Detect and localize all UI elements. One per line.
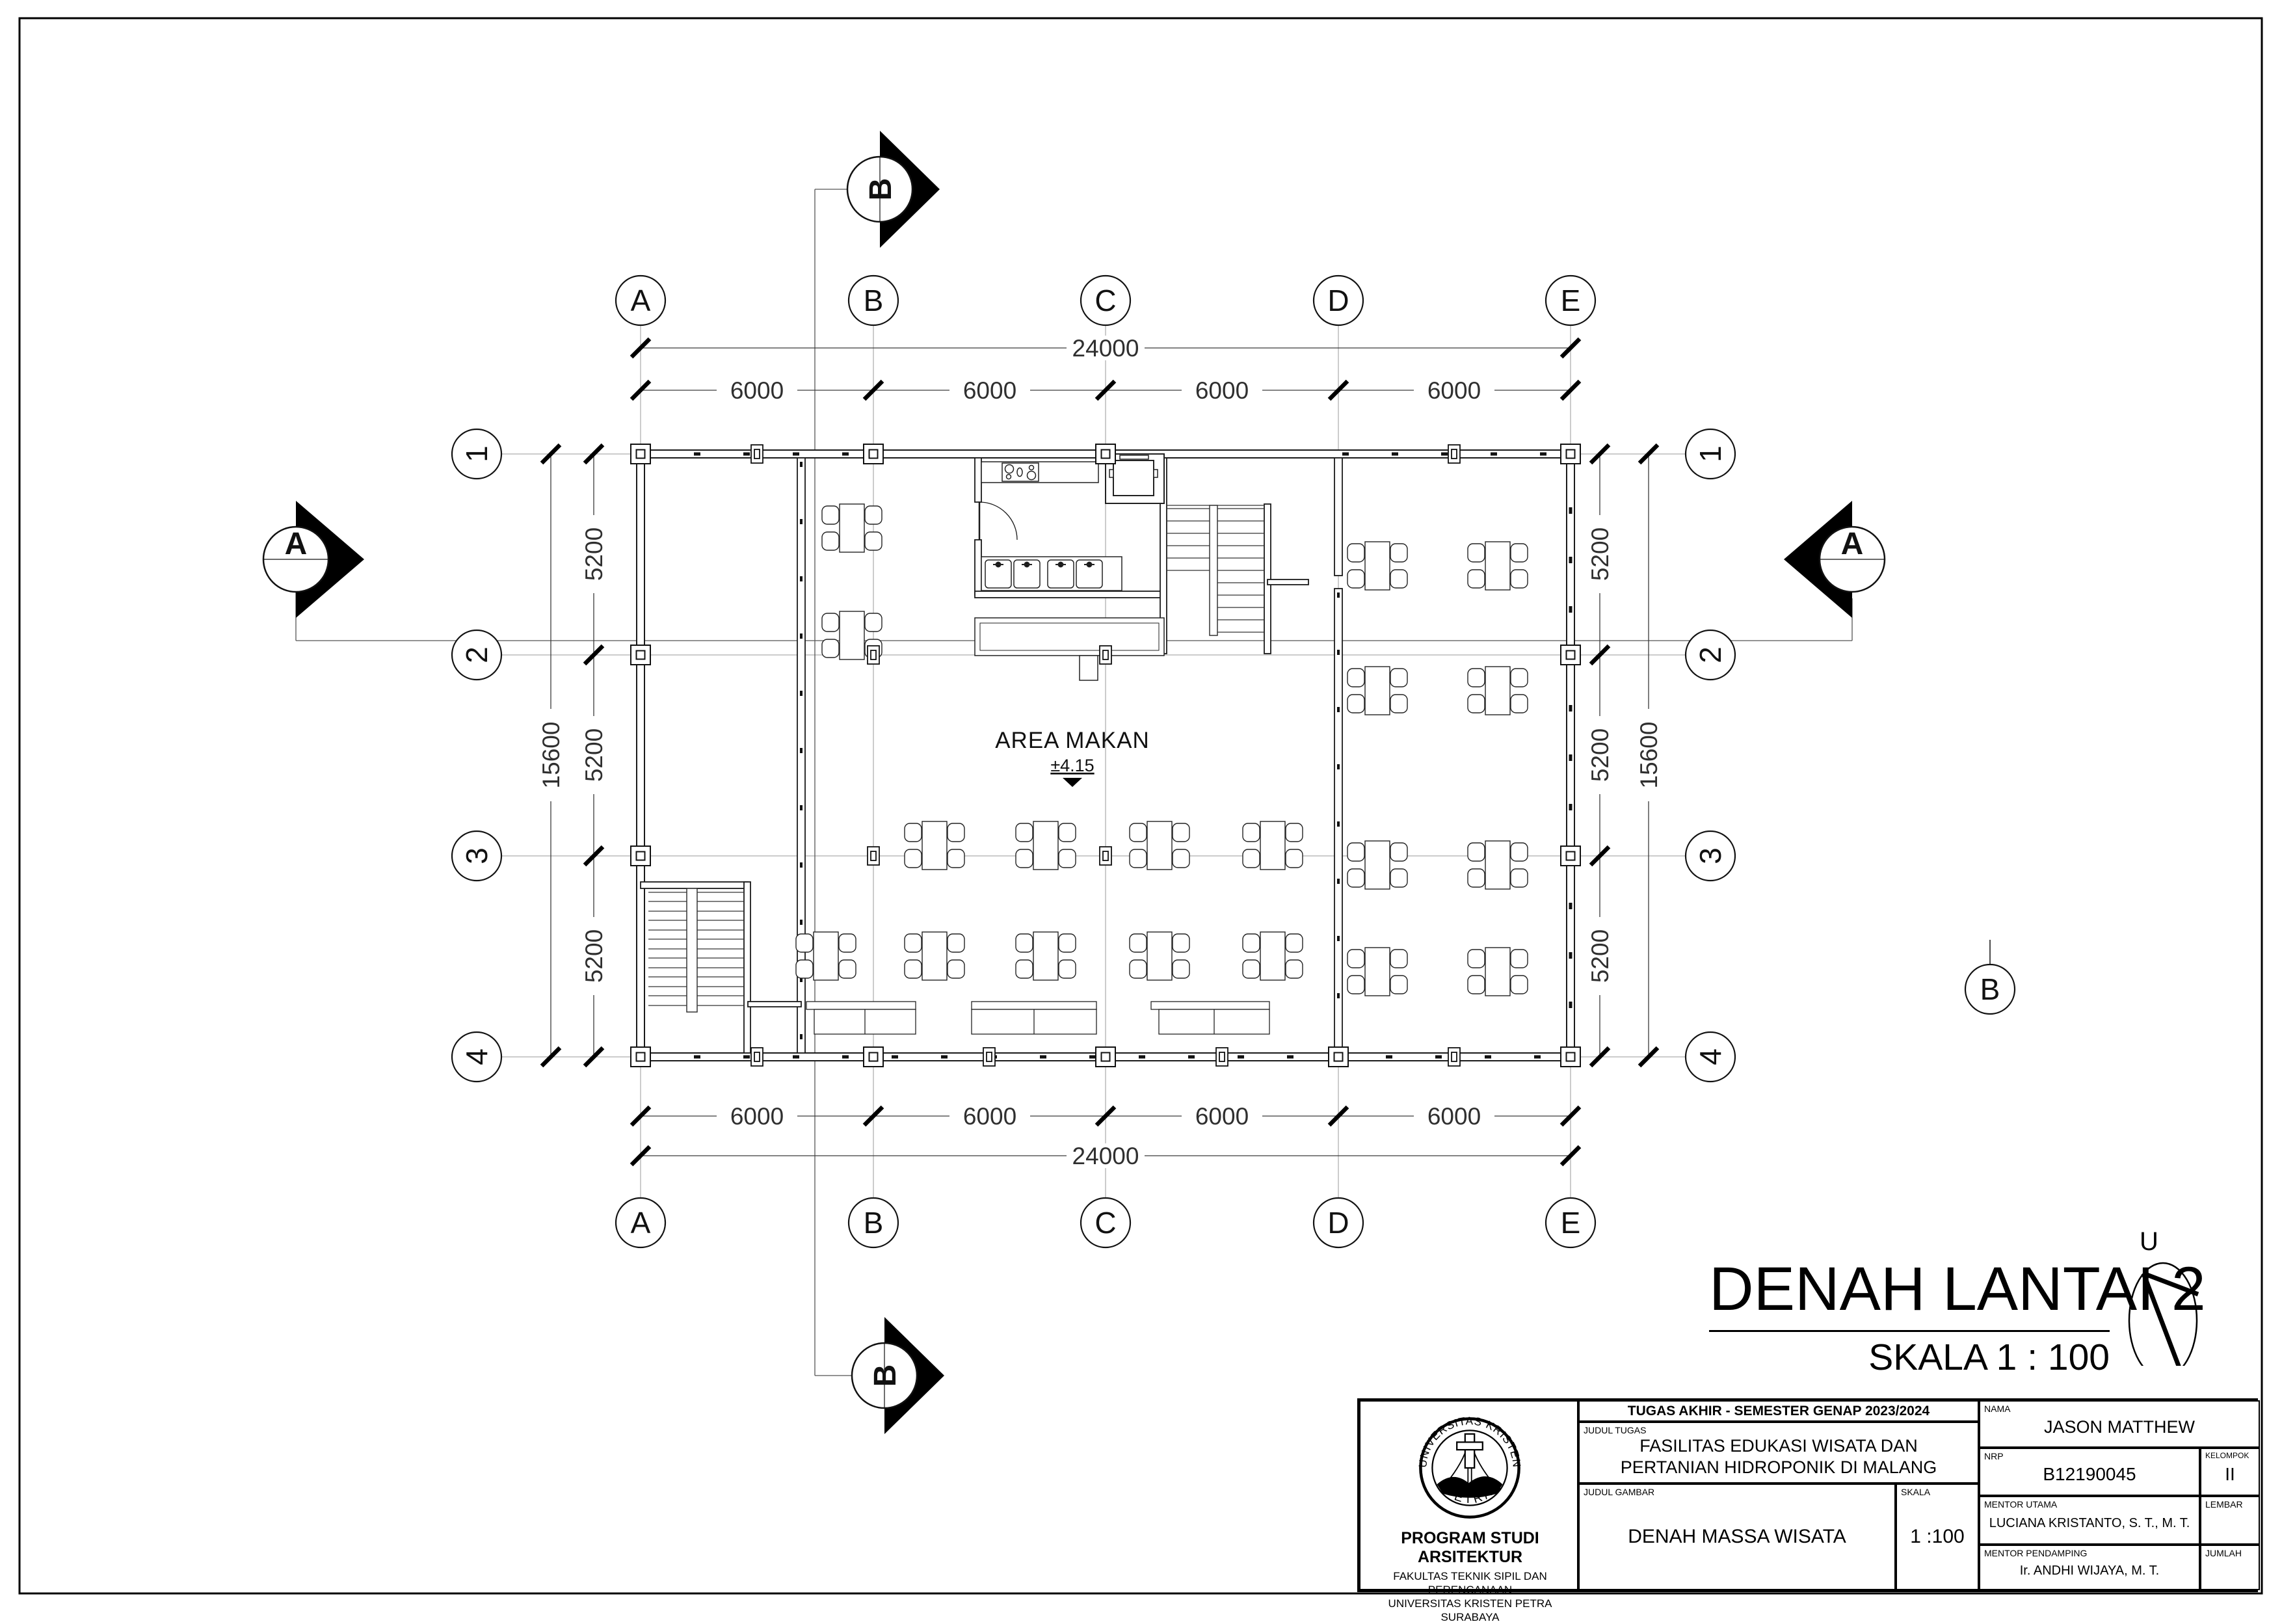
column xyxy=(1329,1047,1348,1067)
interior-walls xyxy=(641,458,1342,1053)
grid-col-d-bottom: D xyxy=(1327,1206,1349,1240)
dim-bottom-total: 24000 xyxy=(1072,1143,1139,1169)
dim-top-seg-3: 6000 xyxy=(1195,377,1249,404)
dining-table xyxy=(1130,932,1189,980)
grid-row-1-left: 1 xyxy=(460,446,494,462)
dining-table xyxy=(1468,841,1528,889)
dining-table xyxy=(822,504,882,552)
grid-col-a-top: A xyxy=(631,284,651,317)
column xyxy=(864,1047,883,1067)
elevation-marker-icon xyxy=(1063,778,1082,787)
fakultas: FAKULTAS TEKNIK SIPIL DAN PERENCANAAN xyxy=(1360,1569,1580,1597)
dumbwaiter-car xyxy=(1113,460,1154,496)
program-studi: PROGRAM STUDI ARSITEKTUR xyxy=(1360,1529,1580,1567)
grid-bubbles xyxy=(452,276,2015,1247)
column-mid xyxy=(983,1048,995,1066)
dining-table xyxy=(1130,821,1189,870)
kelompok-cell: KELOMPOK II xyxy=(2200,1448,2260,1496)
grid-row-2-right: 2 xyxy=(1693,646,1727,663)
dim-left-seg-1: 5200 xyxy=(581,527,607,581)
room-name: AREA MAKAN xyxy=(995,728,1150,753)
dim-bottom-seg-1: 6000 xyxy=(730,1103,784,1130)
north-arrow: U xyxy=(2112,1223,2216,1366)
room-elevation: ±4.15 xyxy=(1050,756,1094,775)
dining-table xyxy=(1016,932,1076,980)
drawing-sheet: 24000 6000 6000 6000 6000 6000 6000 6000… xyxy=(0,0,2282,1614)
dining-table xyxy=(1468,948,1528,996)
window-benches xyxy=(806,1002,1269,1034)
dim-right-seg-1: 5200 xyxy=(1587,527,1613,581)
column-mid xyxy=(751,1048,763,1066)
drawing-title-group: DENAH LANTAI 2 SKALA 1 : 100 xyxy=(1709,1254,2110,1379)
stove-counter xyxy=(981,462,1098,483)
kitchen-door xyxy=(979,502,1017,540)
dim-left-total: 15600 xyxy=(538,722,564,789)
dining-table xyxy=(1347,841,1407,889)
counter-tab xyxy=(1080,656,1098,680)
lembar-label: LEMBAR xyxy=(2205,1499,2243,1510)
dining-table xyxy=(1243,821,1303,870)
grid-col-c-bottom: C xyxy=(1095,1206,1116,1240)
column-mid xyxy=(1448,1048,1460,1066)
logo-cell: UNIVERSITAS KRISTEN PETRA PROGRAM STUDI … xyxy=(1359,1400,1578,1590)
dining-table xyxy=(905,932,964,980)
window-walls xyxy=(644,454,1571,1057)
dining-table xyxy=(1468,542,1528,590)
column-interior xyxy=(1100,646,1111,664)
column xyxy=(1561,1047,1580,1067)
nama-cell: NAMA JASON MATTHEW xyxy=(1979,1400,2260,1448)
dim-top-seg-4: 6000 xyxy=(1427,377,1481,404)
grid-bubble-b-stray: B xyxy=(1980,972,2000,1006)
dim-left-seg-3: 5200 xyxy=(581,929,607,983)
judul-gambar-cell: JUDUL GAMBAR DENAH MASSA WISATA xyxy=(1578,1484,1896,1590)
grid-row-3-left: 3 xyxy=(460,847,494,864)
kota: SURABAYA xyxy=(1360,1610,1580,1624)
dining-table xyxy=(905,821,964,870)
nrp-cell: NRP B12190045 xyxy=(1979,1448,2200,1496)
mentor-utama-cell: MENTOR UTAMA LUCIANA KRISTANTO, S. T., M… xyxy=(1979,1496,2200,1545)
column-mid xyxy=(751,445,763,463)
column xyxy=(631,444,650,464)
dim-top-seg-2: 6000 xyxy=(963,377,1016,404)
dim-top-total: 24000 xyxy=(1072,335,1139,362)
grid-col-d-top: D xyxy=(1327,284,1349,317)
grid-col-b-top: B xyxy=(864,284,884,317)
logo-ship-icon xyxy=(1437,1434,1503,1498)
grid-col-b-bottom: B xyxy=(864,1206,884,1240)
column xyxy=(1096,444,1115,464)
dining-table xyxy=(1016,821,1076,870)
main-stair xyxy=(1167,505,1264,635)
column xyxy=(1561,444,1580,464)
column xyxy=(864,444,883,464)
grid-row-3-right: 3 xyxy=(1693,847,1727,864)
north-label: U xyxy=(2140,1227,2158,1256)
dim-right-seg-3: 5200 xyxy=(1587,929,1613,983)
column xyxy=(1561,846,1580,866)
section-b-bottom-label: B xyxy=(868,1364,903,1387)
grid-col-a-bottom: A xyxy=(631,1206,651,1240)
dim-right-total: 15600 xyxy=(1636,722,1662,789)
nrp-value: B12190045 xyxy=(1980,1449,2199,1495)
grid-row-4-left: 4 xyxy=(460,1048,494,1065)
dim-left-seg-2: 5200 xyxy=(581,728,607,782)
mentor-pendamping-value: Ir. ANDHI WIJAYA, M. T. xyxy=(1980,1546,2199,1589)
skala-value: 1 :100 xyxy=(1897,1485,1978,1589)
grid-row-1-right: 1 xyxy=(1693,446,1727,462)
kitchen xyxy=(975,454,1164,680)
judul-tugas-line2: PERTANIAN HIDROPONIK DI MALANG xyxy=(1621,1457,1937,1478)
lembar-cell: LEMBAR xyxy=(2200,1496,2260,1545)
mentor-pendamping-cell: MENTOR PENDAMPING Ir. ANDHI WIJAYA, M. T… xyxy=(1979,1545,2200,1590)
dim-right-seg-2: 5200 xyxy=(1587,728,1613,782)
jumlah-cell: JUMLAH xyxy=(2200,1545,2260,1590)
column-mid xyxy=(1216,1048,1228,1066)
column xyxy=(631,1047,650,1067)
drawing-scale: SKALA 1 : 100 xyxy=(1709,1336,2110,1379)
column-mid xyxy=(1448,445,1460,463)
section-b-top-label: B xyxy=(864,178,898,201)
column xyxy=(631,645,650,665)
lower-stair xyxy=(648,888,744,1012)
title-block: UNIVERSITAS KRISTEN PETRA PROGRAM STUDI … xyxy=(1357,1398,2258,1592)
room-label-dining: AREA MAKAN ±4.15 xyxy=(995,728,1150,787)
institution-text: PROGRAM STUDI ARSITEKTUR FAKULTAS TEKNIK… xyxy=(1360,1529,1580,1624)
nama-value: JASON MATTHEW xyxy=(1980,1402,2259,1446)
dim-bottom-seg-2: 6000 xyxy=(963,1103,1016,1130)
skala-cell: SKALA 1 :100 xyxy=(1896,1484,1979,1590)
column-interior xyxy=(868,847,879,865)
column xyxy=(631,846,650,866)
dining-table xyxy=(1347,542,1407,590)
title-block-header: TUGAS AKHIR - SEMESTER GENAP 2023/2024 xyxy=(1580,1402,1978,1420)
serving-counter-inner xyxy=(980,623,1159,650)
column-interior xyxy=(1100,847,1111,865)
university-logo: UNIVERSITAS KRISTEN PETRA xyxy=(1411,1409,1528,1526)
grid-col-c-top: C xyxy=(1095,284,1116,317)
grid-col-e-bottom: E xyxy=(1561,1206,1581,1240)
grid-col-e-top: E xyxy=(1561,284,1581,317)
grid-bubble-labels: A B C D E A B C D E 1 2 3 4 1 2 3 4 B xyxy=(460,284,2000,1240)
header-cell: TUGAS AKHIR - SEMESTER GENAP 2023/2024 xyxy=(1578,1400,1979,1422)
mentor-utama-value: LUCIANA KRISTANTO, S. T., M. T. xyxy=(1980,1497,2199,1543)
dim-bottom-seg-3: 6000 xyxy=(1195,1103,1249,1130)
grid-row-2-left: 2 xyxy=(460,646,494,663)
kelompok-value: II xyxy=(2201,1449,2259,1495)
column xyxy=(1561,645,1580,665)
judul-tugas-cell: JUDUL TUGAS FASILITAS EDUKASI WISATA DAN… xyxy=(1578,1422,1979,1484)
grid-row-4-right: 4 xyxy=(1693,1048,1727,1065)
universitas: UNIVERSITAS KRISTEN PETRA xyxy=(1360,1597,1580,1610)
dining-table xyxy=(1243,932,1303,980)
dining-table xyxy=(1347,948,1407,996)
dining-table xyxy=(1468,667,1528,715)
judul-gambar-value: DENAH MASSA WISATA xyxy=(1580,1485,1894,1589)
judul-tugas-line1: FASILITAS EDUKASI WISATA DAN xyxy=(1639,1435,1918,1457)
column-interior xyxy=(868,646,879,664)
column xyxy=(1096,1047,1115,1067)
drawing-title: DENAH LANTAI 2 xyxy=(1709,1254,2110,1332)
section-a-right-label: A xyxy=(1841,527,1864,561)
dim-bottom-seg-4: 6000 xyxy=(1427,1103,1481,1130)
dim-top-seg-1: 6000 xyxy=(730,377,784,404)
dining-table xyxy=(1347,667,1407,715)
section-a-left-label: A xyxy=(285,527,308,561)
jumlah-label: JUMLAH xyxy=(2205,1548,2242,1558)
